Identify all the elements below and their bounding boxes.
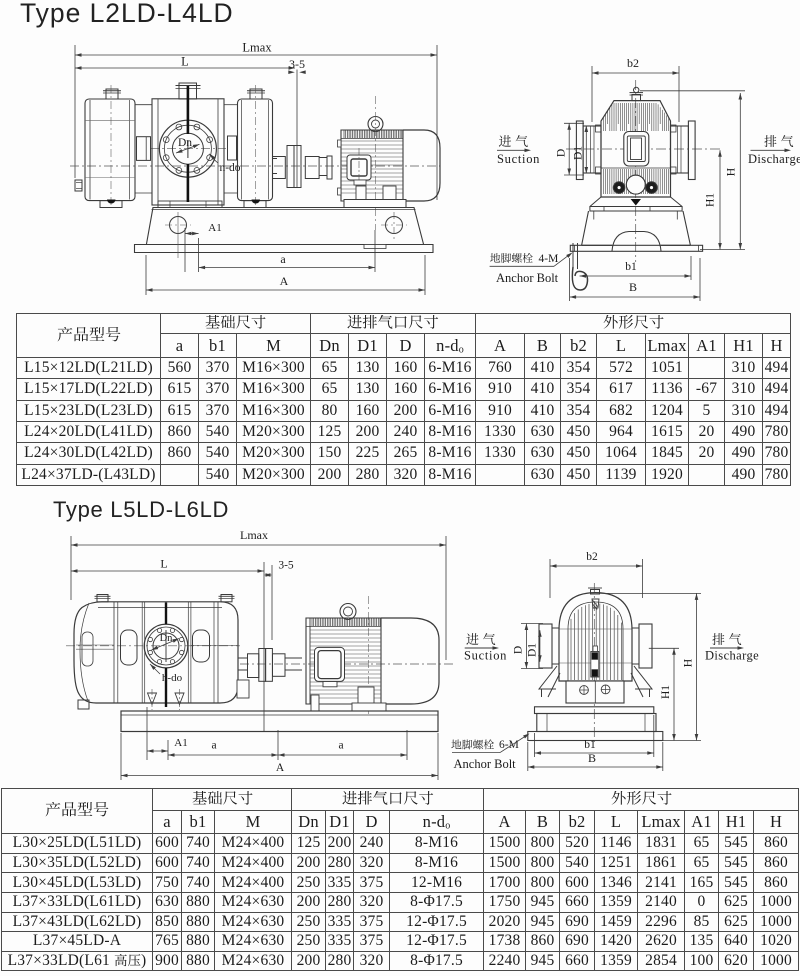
svg-text:A: A [276,762,285,774]
svg-text:H1: H1 [660,685,672,699]
svg-text:L: L [181,55,189,69]
svg-text:Lmax: Lmax [242,41,272,55]
svg-text:b2: b2 [627,56,639,70]
svg-text:3-5: 3-5 [278,560,294,572]
svg-text:L: L [160,557,167,571]
svg-text:b1: b1 [625,261,637,273]
svg-text:H: H [681,658,695,667]
svg-text:Anchor Bolt: Anchor Bolt [496,271,559,285]
svg-text:a: a [211,740,216,752]
svg-text:4-M: 4-M [539,253,559,265]
svg-text:3-5: 3-5 [289,57,305,71]
svg-text:B: B [629,280,637,294]
svg-text:6-M: 6-M [499,739,519,751]
svg-text:h-do: h-do [162,672,183,684]
svg-text:Dn: Dn [178,137,192,149]
svg-text:D1: D1 [526,643,538,657]
svg-text:A1: A1 [208,222,221,234]
svg-text:A: A [280,274,289,288]
svg-text:A1: A1 [174,737,187,749]
svg-text:B: B [588,751,596,765]
svg-text:Suction: Suction [497,152,540,166]
svg-text:H: H [724,167,738,176]
svg-text:Discharge: Discharge [705,649,759,663]
svg-text:Dn: Dn [160,633,174,644]
svg-text:D: D [512,646,524,654]
svg-text:Discharge: Discharge [748,152,800,166]
svg-text:H1: H1 [705,193,717,207]
svg-text:D1: D1 [573,146,585,160]
svg-text:Anchor Bolt: Anchor Bolt [454,757,517,771]
svg-text:a: a [280,252,286,266]
svg-text:b1: b1 [584,739,596,751]
svg-text:b2: b2 [586,551,598,563]
svg-text:D: D [556,149,568,157]
svg-text:Suction: Suction [464,649,507,663]
svg-text:a: a [338,740,343,752]
svg-text:Lmax: Lmax [240,528,268,542]
